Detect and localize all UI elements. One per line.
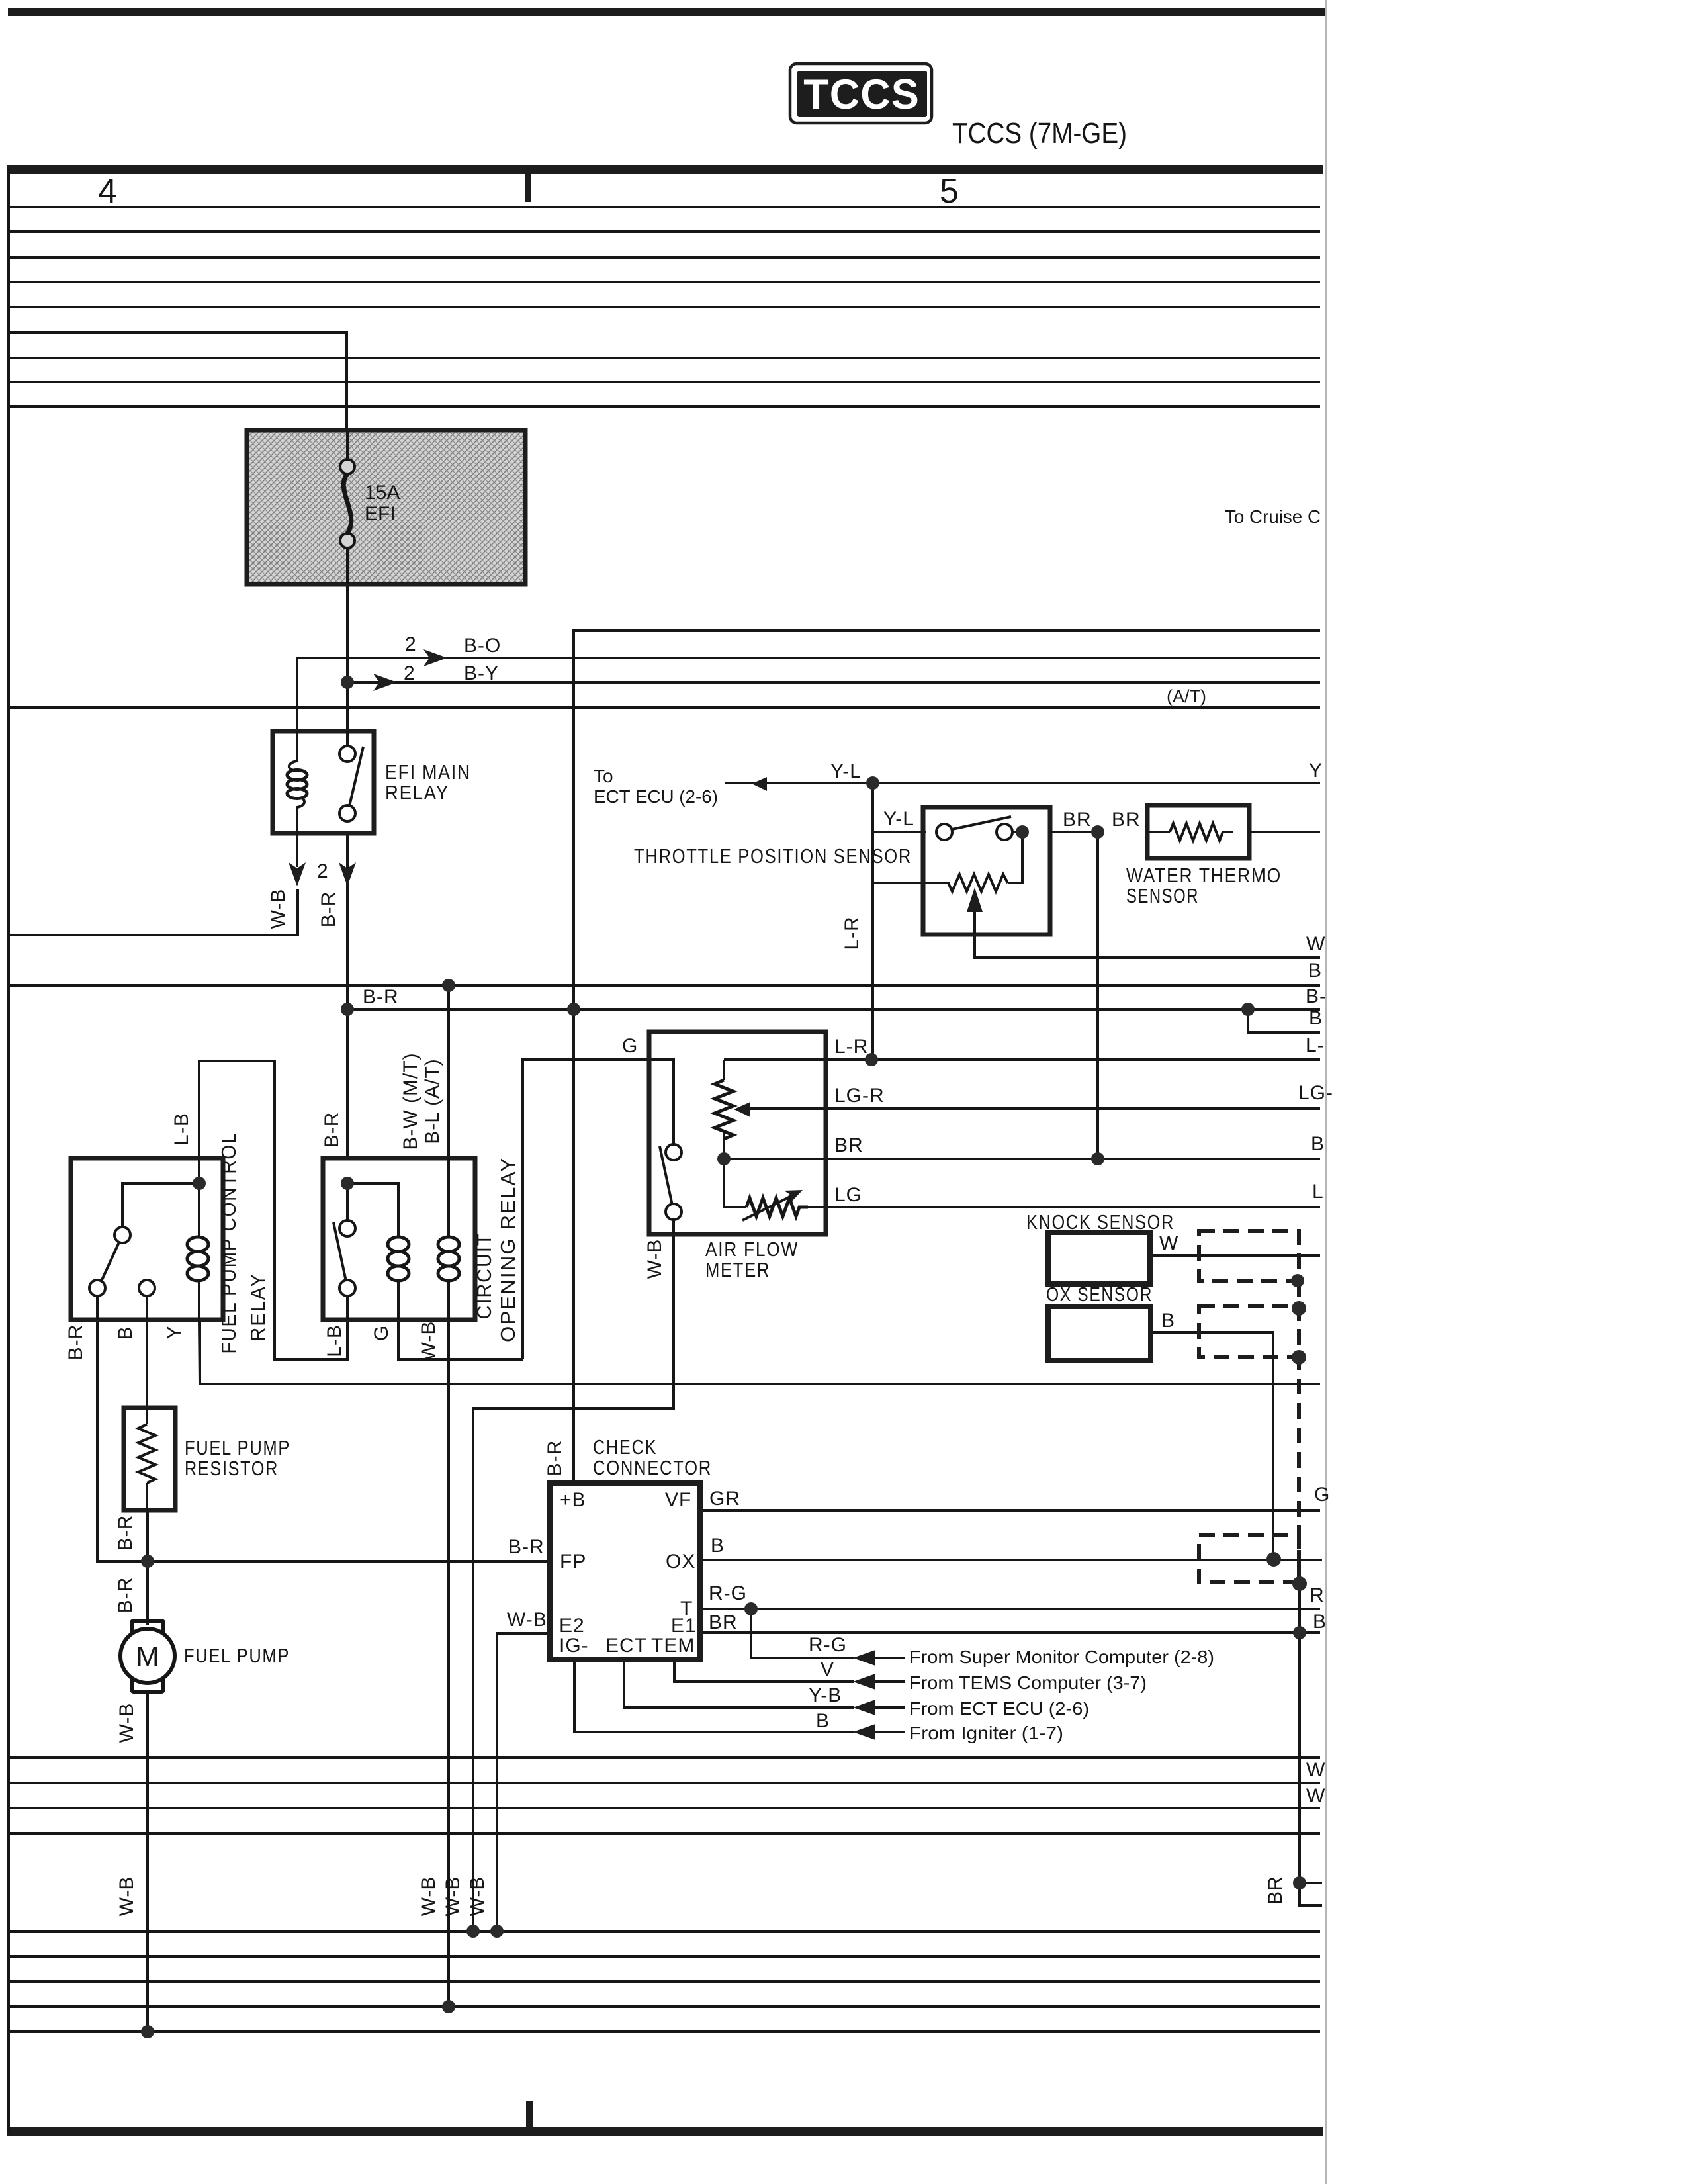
svg-text:B: B — [114, 1326, 136, 1340]
svg-text:W-B: W-B — [418, 1321, 439, 1361]
svg-text:R-G: R-G — [809, 1634, 847, 1656]
svg-text:WATER THERMO: WATER THERMO — [1126, 864, 1282, 887]
svg-text:OPENING RELAY: OPENING RELAY — [496, 1157, 519, 1342]
svg-text:B-R: B-R — [321, 1112, 343, 1148]
svg-text:From ECT ECU (2-6): From ECT ECU (2-6) — [909, 1698, 1089, 1719]
svg-text:R: R — [1310, 1584, 1325, 1606]
svg-text:KNOCK SENSOR: KNOCK SENSOR — [1026, 1210, 1175, 1234]
svg-text:Y: Y — [1309, 760, 1323, 782]
svg-text:L-R: L-R — [841, 916, 863, 950]
svg-text:G: G — [371, 1325, 392, 1341]
svg-text:B-: B- — [1306, 985, 1327, 1007]
svg-text:VF: VF — [665, 1489, 691, 1511]
svg-text:W-B: W-B — [116, 1876, 138, 1917]
svg-text:ECT ECU (2-6): ECT ECU (2-6) — [594, 786, 718, 807]
svg-text:B: B — [1161, 1310, 1175, 1332]
svg-text:W-B: W-B — [116, 1703, 138, 1743]
svg-text:W: W — [1306, 1785, 1325, 1807]
svg-text:TCCS: TCCS — [803, 71, 920, 118]
svg-text:B-R: B-R — [544, 1440, 566, 1477]
svg-text:FUEL PUMP: FUEL PUMP — [185, 1436, 290, 1459]
svg-text:W-B: W-B — [442, 1876, 464, 1917]
svg-text:GR: GR — [709, 1488, 740, 1510]
svg-text:M: M — [136, 1641, 159, 1672]
svg-text:FP: FP — [560, 1551, 586, 1572]
svg-text:CHECK: CHECK — [593, 1435, 657, 1459]
svg-text:E1: E1 — [671, 1615, 697, 1637]
svg-text:FUEL PUMP CONTROL: FUEL PUMP CONTROL — [217, 1132, 240, 1354]
svg-text:BR: BR — [709, 1612, 738, 1633]
svg-text:B: B — [816, 1710, 830, 1732]
svg-text:2: 2 — [405, 633, 417, 655]
svg-text:W-B: W-B — [507, 1609, 547, 1631]
svg-text:W: W — [1306, 933, 1325, 955]
svg-text:BR: BR — [834, 1134, 864, 1156]
svg-text:IG-: IG- — [559, 1635, 589, 1657]
svg-text:B-L (A/T): B-L (A/T) — [422, 1058, 443, 1144]
svg-text:G: G — [622, 1035, 638, 1057]
svg-text:B-Y: B-Y — [464, 662, 499, 684]
svg-text:To: To — [594, 766, 613, 786]
svg-text:RELAY: RELAY — [385, 781, 449, 804]
svg-text:OX SENSOR: OX SENSOR — [1046, 1283, 1153, 1306]
svg-text:W-B: W-B — [267, 889, 289, 929]
svg-text:B-R: B-R — [363, 986, 399, 1008]
svg-text:From Super Monitor Computer (2: From Super Monitor Computer (2-8) — [909, 1647, 1214, 1667]
svg-text:5: 5 — [940, 172, 959, 210]
svg-text:FUEL PUMP: FUEL PUMP — [184, 1644, 290, 1667]
svg-text:THROTTLE POSITION SENSOR: THROTTLE POSITION SENSOR — [634, 844, 912, 868]
svg-text:Y-L: Y-L — [883, 808, 914, 830]
svg-text:V: V — [821, 1659, 834, 1680]
svg-text:E2: E2 — [559, 1615, 585, 1637]
svg-text:Y-L: Y-L — [830, 760, 862, 782]
svg-text:OX: OX — [666, 1551, 695, 1572]
svg-text:From TEMS Computer (3-7): From TEMS Computer (3-7) — [909, 1672, 1147, 1693]
svg-text:B: B — [1313, 1611, 1327, 1633]
svg-text:(A/T): (A/T) — [1167, 686, 1206, 706]
svg-text:BR: BR — [1063, 809, 1092, 831]
svg-text:B: B — [1308, 960, 1322, 981]
svg-text:CIRCUIT: CIRCUIT — [472, 1233, 496, 1320]
svg-text:B: B — [711, 1535, 725, 1557]
svg-text:W-B: W-B — [644, 1239, 666, 1279]
svg-text:LG-R: LG-R — [834, 1085, 885, 1107]
svg-text:B: B — [1309, 1007, 1323, 1029]
svg-text:CONNECTOR: CONNECTOR — [593, 1456, 712, 1479]
svg-text:B-R: B-R — [114, 1577, 136, 1614]
svg-text:W: W — [1306, 1759, 1325, 1781]
svg-text:15A: 15A — [365, 482, 400, 504]
svg-text:R-G: R-G — [709, 1582, 747, 1604]
svg-text:RESISTOR: RESISTOR — [185, 1457, 279, 1480]
svg-text:2: 2 — [404, 662, 416, 684]
svg-text:LG: LG — [834, 1184, 862, 1206]
svg-text:W: W — [1159, 1232, 1178, 1254]
svg-text:B-R: B-R — [318, 891, 339, 928]
svg-text:4: 4 — [98, 172, 117, 210]
svg-text:Y: Y — [163, 1325, 185, 1339]
svg-text:2: 2 — [317, 860, 329, 882]
svg-text:+B: +B — [560, 1489, 586, 1511]
svg-text:B-R: B-R — [508, 1536, 545, 1558]
svg-text:B-R: B-R — [114, 1515, 136, 1551]
svg-text:Y-B: Y-B — [809, 1684, 842, 1706]
svg-text:EFI: EFI — [365, 503, 396, 525]
svg-text:EFI MAIN: EFI MAIN — [385, 760, 471, 784]
svg-text:B-O: B-O — [464, 635, 501, 657]
svg-text:L-: L- — [1306, 1034, 1325, 1056]
svg-text:B-W (M/T): B-W (M/T) — [400, 1052, 422, 1150]
svg-text:G: G — [1314, 1484, 1330, 1506]
svg-text:From Igniter (1-7): From Igniter (1-7) — [909, 1723, 1063, 1743]
svg-text:BR: BR — [1112, 809, 1141, 831]
svg-text:W-B: W-B — [418, 1876, 439, 1917]
svg-text:B: B — [1311, 1133, 1325, 1155]
svg-text:BR: BR — [1265, 1876, 1286, 1905]
svg-text:LG-: LG- — [1298, 1082, 1333, 1104]
svg-text:To Cruise C: To Cruise C — [1225, 506, 1321, 527]
svg-text:SENSOR: SENSOR — [1126, 884, 1199, 907]
svg-text:ECT: ECT — [605, 1635, 647, 1657]
svg-text:METER: METER — [705, 1258, 770, 1281]
svg-text:TCCS (7M-GE): TCCS (7M-GE) — [952, 117, 1127, 150]
svg-text:L-R: L-R — [834, 1036, 868, 1058]
svg-text:RELAY: RELAY — [246, 1273, 269, 1342]
svg-text:L-B: L-B — [171, 1113, 193, 1146]
svg-text:TEM: TEM — [651, 1635, 695, 1657]
svg-text:W-B: W-B — [466, 1876, 488, 1917]
svg-text:B-R: B-R — [65, 1324, 87, 1361]
svg-text:AIR FLOW: AIR FLOW — [705, 1238, 799, 1261]
svg-text:L-B: L-B — [324, 1324, 345, 1357]
svg-text:L: L — [1312, 1181, 1324, 1203]
